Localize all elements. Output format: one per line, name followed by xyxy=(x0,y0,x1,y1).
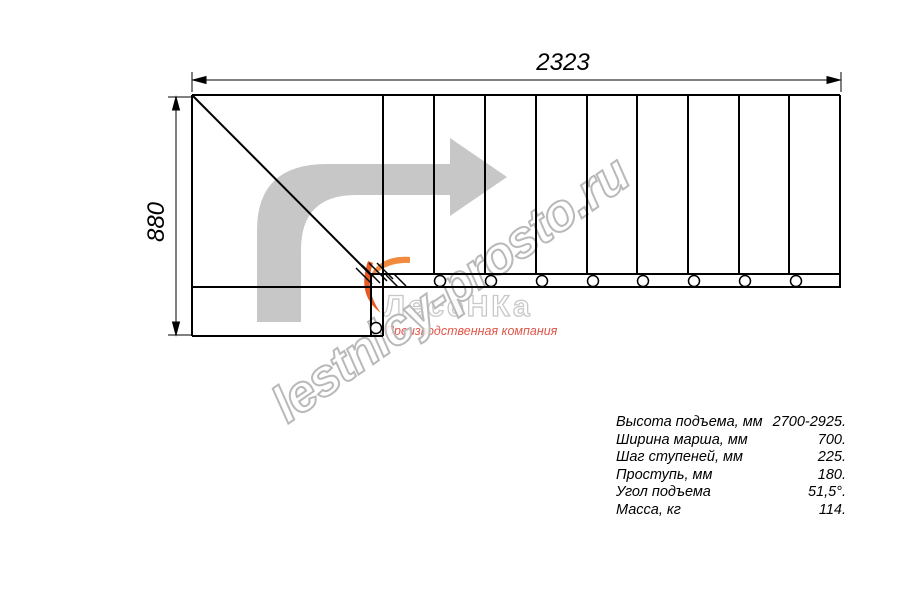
spec-label: Шаг ступеней, мм xyxy=(616,449,743,467)
spec-value: 51,5°. xyxy=(808,484,846,502)
bolt-hole xyxy=(588,276,599,287)
landing-diagonal xyxy=(193,96,371,275)
width-dimension-label: 2323 xyxy=(503,49,623,77)
spec-label: Высота подъема, мм xyxy=(616,414,763,432)
spec-value: 114. xyxy=(819,502,846,520)
spec-value: 225. xyxy=(818,449,846,467)
bolt-hole xyxy=(537,276,548,287)
spec-value: 700. xyxy=(818,432,846,450)
dim-arrow-down xyxy=(173,322,180,335)
spec-label: Масса, кг xyxy=(616,502,681,520)
spec-value: 180. xyxy=(818,467,846,485)
bolt-hole xyxy=(371,323,382,334)
spec-row: Высота подъема, мм 2700-2925. xyxy=(616,414,846,432)
bolt-hole xyxy=(638,276,649,287)
dim-arrow-up xyxy=(173,97,180,110)
height-dimension-label: 880 xyxy=(143,162,171,282)
height-dimension xyxy=(168,97,192,335)
dim-arrow-right xyxy=(827,77,840,84)
bolt-hole xyxy=(791,276,802,287)
staircase-plan-drawing: ЛесеНКа Производственная компания lestni… xyxy=(0,0,900,600)
spec-label: Ширина марша, мм xyxy=(616,432,748,450)
bolt-hole xyxy=(740,276,751,287)
spec-value: 2700-2925. xyxy=(773,414,846,432)
specs-table: Высота подъема, мм 2700-2925. Ширина мар… xyxy=(616,414,846,520)
spec-row: Ширина марша, мм 700. xyxy=(616,432,846,450)
bolt-hole xyxy=(435,276,446,287)
spec-label: Угол подъема xyxy=(616,484,711,502)
spec-row: Масса, кг 114. xyxy=(616,502,846,520)
dim-arrow-left xyxy=(193,77,206,84)
bolt-hole xyxy=(486,276,497,287)
spec-row: Угол подъема 51,5°. xyxy=(616,484,846,502)
spec-row: Проступь, мм 180. xyxy=(616,467,846,485)
bolt-holes xyxy=(371,276,802,334)
spec-label: Проступь, мм xyxy=(616,467,712,485)
spec-row: Шаг ступеней, мм 225. xyxy=(616,449,846,467)
staircase-outline xyxy=(192,95,840,336)
bolt-hole xyxy=(689,276,700,287)
